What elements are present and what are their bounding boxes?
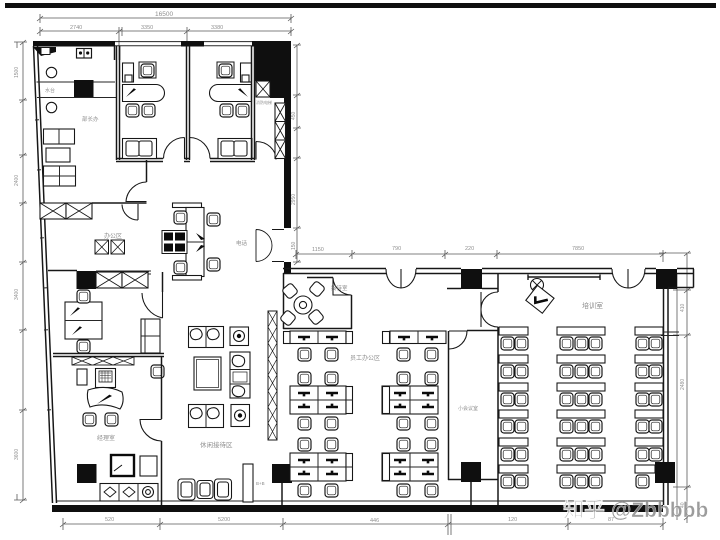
svg-text:消防电梯: 消防电梯 [256, 99, 272, 105]
svg-text:2400: 2400 [14, 175, 20, 186]
svg-text:5200: 5200 [218, 517, 230, 523]
svg-text:3350: 3350 [141, 25, 153, 31]
svg-text:2950: 2950 [291, 194, 297, 205]
svg-text:培训室: 培训室 [582, 301, 603, 310]
svg-text:经理室: 经理室 [97, 434, 115, 442]
svg-text:1500: 1500 [14, 67, 20, 78]
svg-text:小会议室: 小会议室 [458, 405, 478, 412]
svg-text:3380: 3380 [211, 25, 223, 31]
svg-text:120: 120 [508, 517, 517, 523]
svg-text:2740: 2740 [70, 25, 82, 31]
svg-text:446: 446 [370, 518, 379, 524]
svg-text:2480: 2480 [680, 379, 686, 390]
svg-text:1150: 1150 [312, 247, 324, 253]
svg-text:410: 410 [680, 303, 686, 312]
svg-text:接待室: 接待室 [331, 284, 348, 292]
svg-text:450: 450 [291, 111, 297, 120]
svg-text:16500: 16500 [155, 11, 173, 18]
svg-text:电话: 电话 [236, 239, 248, 247]
svg-text:B+B: B+B [256, 481, 265, 486]
svg-text:3600: 3600 [14, 449, 20, 460]
svg-text:7850: 7850 [572, 246, 584, 252]
svg-text:水台: 水台 [45, 87, 55, 94]
svg-text:3400: 3400 [14, 289, 20, 300]
svg-text:办公区: 办公区 [104, 232, 122, 240]
svg-text:员工办公区: 员工办公区 [350, 354, 380, 362]
svg-text:休闲接待区: 休闲接待区 [200, 440, 233, 449]
svg-text:知乎 @Zbbbbb: 知乎 @Zbbbbb [563, 498, 708, 522]
svg-text:220: 220 [465, 246, 474, 252]
svg-text:790: 790 [392, 246, 401, 252]
svg-text:520: 520 [105, 517, 114, 523]
svg-text:150: 150 [291, 241, 297, 250]
svg-text:部长办: 部长办 [82, 115, 99, 123]
